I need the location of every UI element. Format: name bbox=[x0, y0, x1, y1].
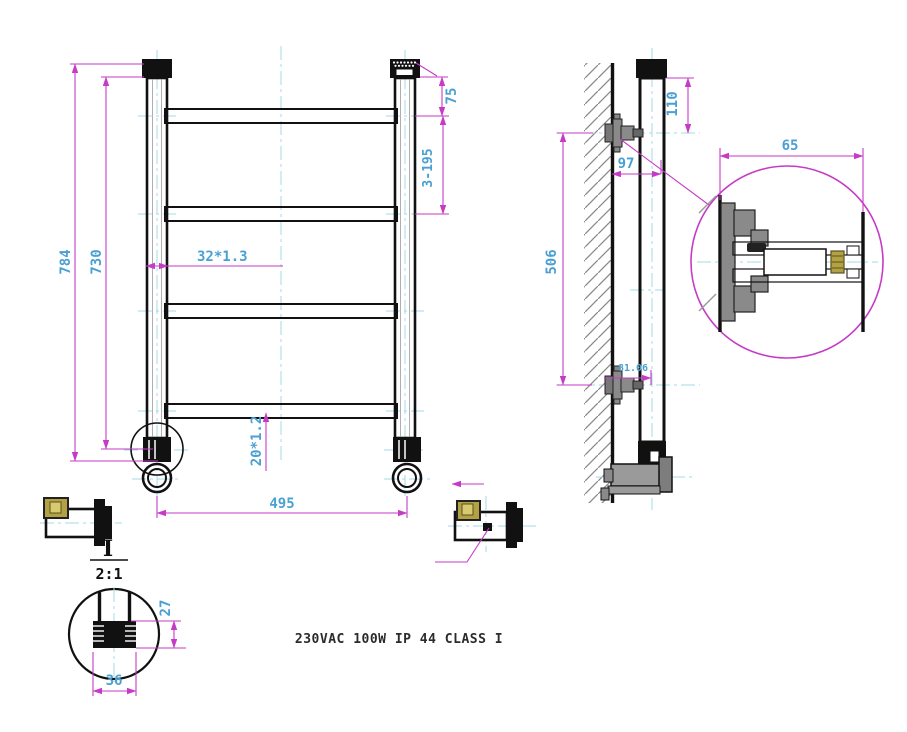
dim-overall-height: 784 bbox=[58, 64, 158, 461]
dim-top-offset: 110 bbox=[665, 78, 694, 133]
dim-27-label: 27 bbox=[158, 600, 174, 617]
top-right-element-cap bbox=[390, 59, 420, 78]
rung-centerline-ticks bbox=[124, 116, 430, 479]
dim-wall-distance: 97 bbox=[612, 156, 661, 174]
dim-75-label: 75 bbox=[444, 88, 460, 105]
bracket-detail-view: 65 bbox=[691, 138, 883, 358]
side-top-cap bbox=[636, 59, 667, 78]
dim-110-label: 110 bbox=[665, 91, 681, 116]
detail-arm-bore bbox=[764, 249, 826, 275]
technical-drawing-canvas: 784 730 75 3-195 32*1.3 bbox=[0, 0, 907, 732]
dim-3-195-label: 3-195 bbox=[421, 148, 436, 187]
detail-bolt bbox=[747, 243, 766, 252]
electrical-spec-text: 230VAC 100W IP 44 CLASS I bbox=[295, 632, 503, 647]
dim-top-to-first-rung: 75 bbox=[415, 63, 460, 116]
drawing-svg: 784 730 75 3-195 32*1.3 bbox=[0, 0, 907, 732]
dim-36-label: 36 bbox=[106, 673, 123, 689]
dim-506-label: 506 bbox=[544, 249, 560, 274]
dim-32x1.3-label: 32*1.3 bbox=[197, 249, 248, 265]
dim-97-label: 97 bbox=[618, 156, 635, 172]
dim-81.06-label: 81.06 bbox=[618, 363, 648, 374]
detail-view-I: 27 36 bbox=[69, 588, 186, 696]
dim-width: 495 bbox=[157, 496, 407, 518]
dim-730-label: 730 bbox=[89, 249, 105, 274]
dim-495-label: 495 bbox=[269, 496, 294, 512]
threaded-fitting-section bbox=[93, 621, 136, 648]
front-view: 784 730 75 3-195 32*1.3 bbox=[58, 46, 460, 518]
detail-letter-I: I bbox=[103, 536, 113, 562]
side-view: 110 97 506 81.06 bbox=[544, 48, 709, 510]
valve-fitting-2 bbox=[435, 484, 536, 562]
dim-tube-height: 730 bbox=[89, 77, 153, 449]
dim-rung-tube-spec: 20*1.2 bbox=[249, 413, 266, 471]
bottom-right-connection bbox=[393, 437, 421, 492]
detail-scale: 2:1 bbox=[95, 565, 122, 583]
fitting-leader-line bbox=[435, 528, 489, 562]
top-left-cap bbox=[142, 59, 172, 78]
dim-65-label: 65 bbox=[782, 138, 799, 154]
dim-bracket-length: 65 bbox=[720, 138, 863, 212]
dim-rung-spacing: 3-195 bbox=[415, 116, 449, 214]
dim-20x1.2-label: 20*1.2 bbox=[249, 416, 265, 467]
dim-784-label: 784 bbox=[58, 249, 74, 274]
